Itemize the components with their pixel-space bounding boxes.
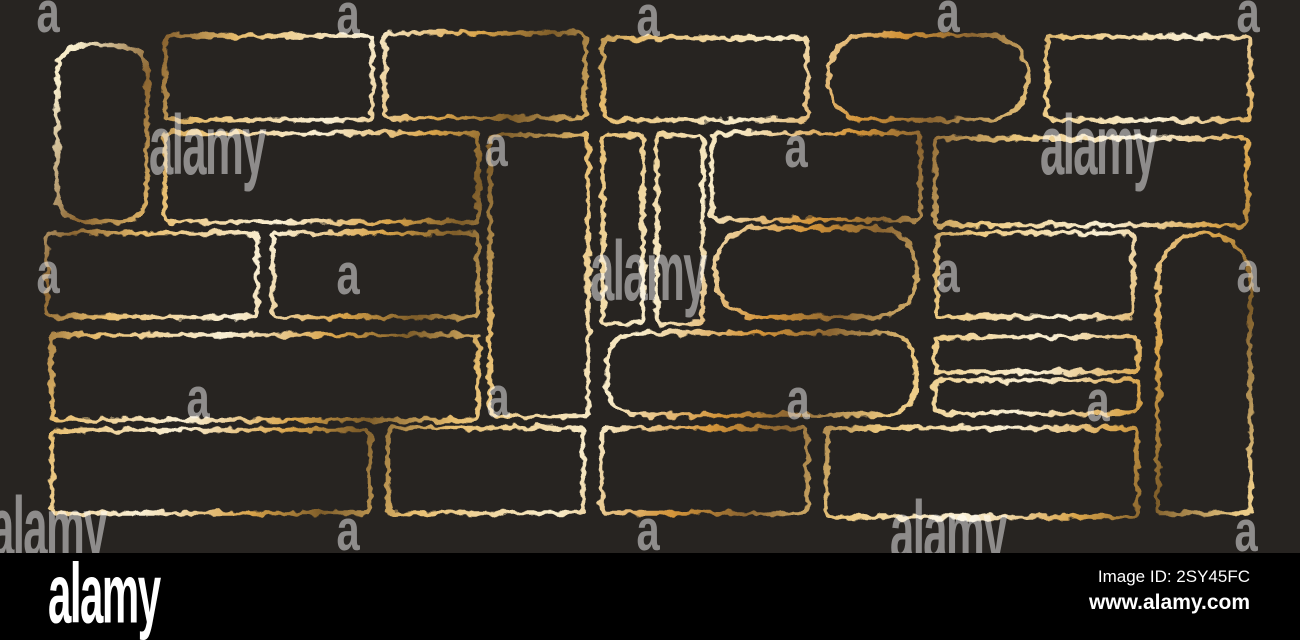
watermark-a: a: [186, 365, 210, 430]
watermark-alamy: alamy: [890, 485, 1007, 553]
watermark-a: a: [936, 239, 960, 304]
watermark-a: a: [786, 366, 810, 431]
image-id-label: Image ID: 2SY45FC: [1089, 566, 1250, 588]
watermark-a: a: [486, 364, 510, 429]
alamy-logo-text: alamy: [48, 551, 160, 635]
stock-image-canvas: alamyalamyalamyalamyalamyaaaaaaaaaaaaaaa…: [0, 0, 1300, 640]
watermark-alamy: alamy: [0, 481, 107, 553]
gold-frames-artwork: alamyalamyalamyalamyalamyaaaaaaaaaaaaaaa…: [0, 0, 1300, 553]
alamy-url: www.alamy.com: [1089, 590, 1250, 616]
watermark-a: a: [36, 240, 60, 305]
watermark-a: a: [484, 113, 508, 178]
watermark-a: a: [336, 0, 360, 47]
watermark-a: a: [336, 241, 360, 306]
watermark-a: a: [1236, 0, 1260, 45]
watermark-a: a: [936, 0, 960, 45]
watermark-alamy: alamy: [1040, 99, 1157, 193]
footer-credit-block: Image ID: 2SY45FC www.alamy.com: [1089, 566, 1250, 616]
watermark-a: a: [784, 114, 808, 179]
watermark-a: a: [636, 497, 660, 553]
frames-illustration: alamyalamyalamyalamyalamyaaaaaaaaaaaaaaa…: [0, 0, 1300, 553]
watermark-alamy: alamy: [149, 99, 266, 193]
watermark-a: a: [636, 0, 660, 49]
watermark-alamy: alamy: [590, 225, 707, 319]
watermark-a: a: [36, 0, 60, 45]
watermark-a: a: [1236, 239, 1260, 304]
alamy-footer-bar: alamy Image ID: 2SY45FC www.alamy.com: [0, 553, 1300, 640]
watermark-a: a: [1086, 368, 1110, 433]
watermark-a: a: [336, 497, 360, 553]
alamy-logo: alamy: [48, 551, 271, 635]
watermark-a: a: [1234, 498, 1258, 553]
